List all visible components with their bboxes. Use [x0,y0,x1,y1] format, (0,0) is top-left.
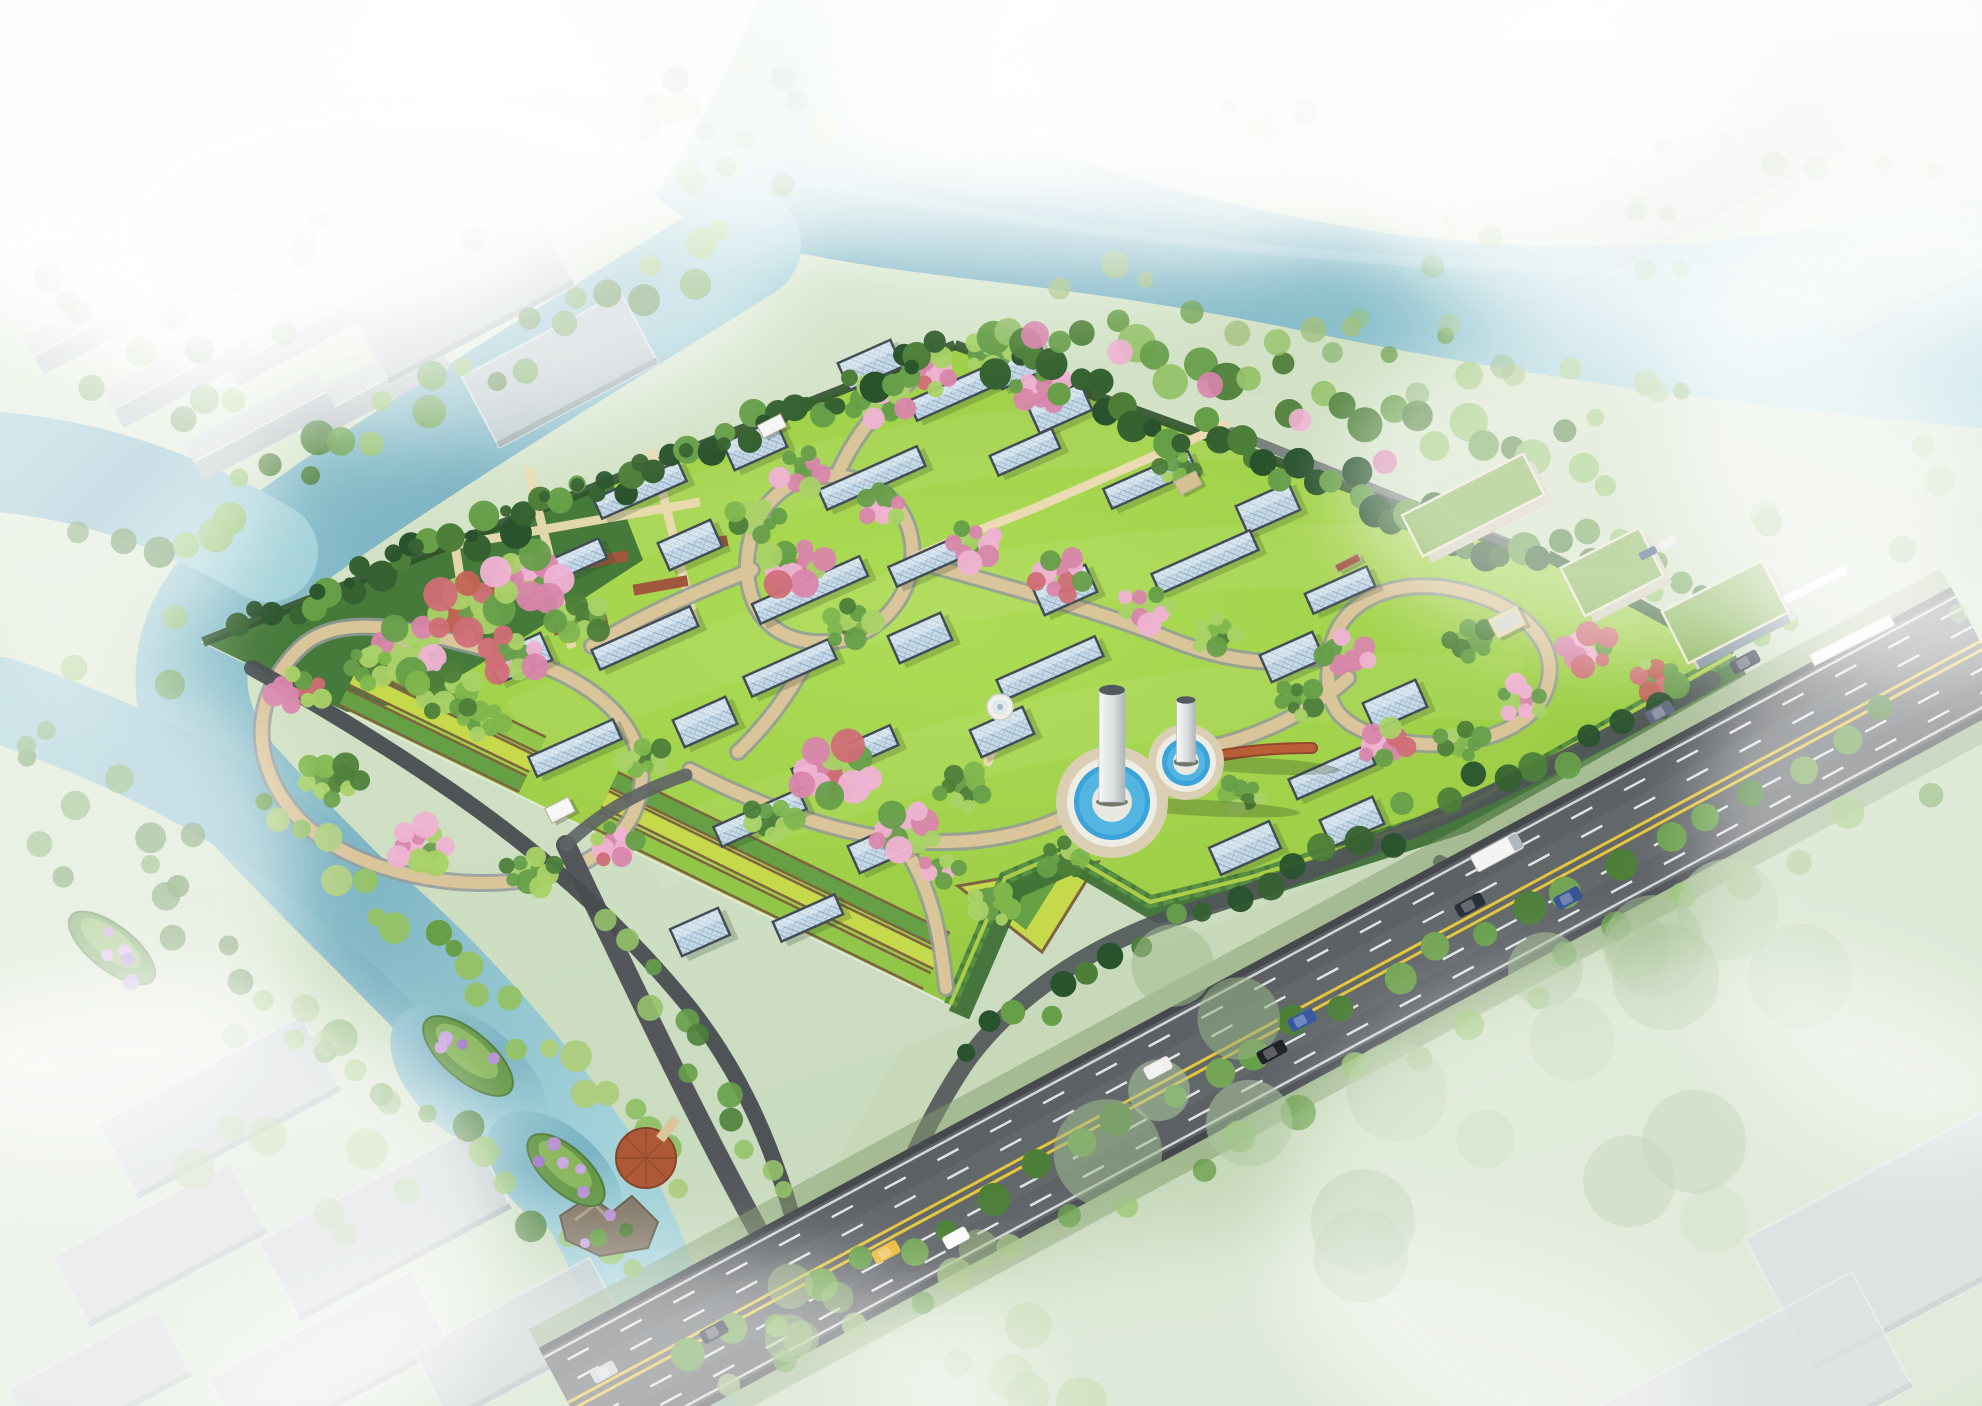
top-fade [0,0,1982,280]
scene-svg [0,0,1982,1406]
rendering-stage [0,0,1982,1406]
veil-layer [0,0,1982,1406]
